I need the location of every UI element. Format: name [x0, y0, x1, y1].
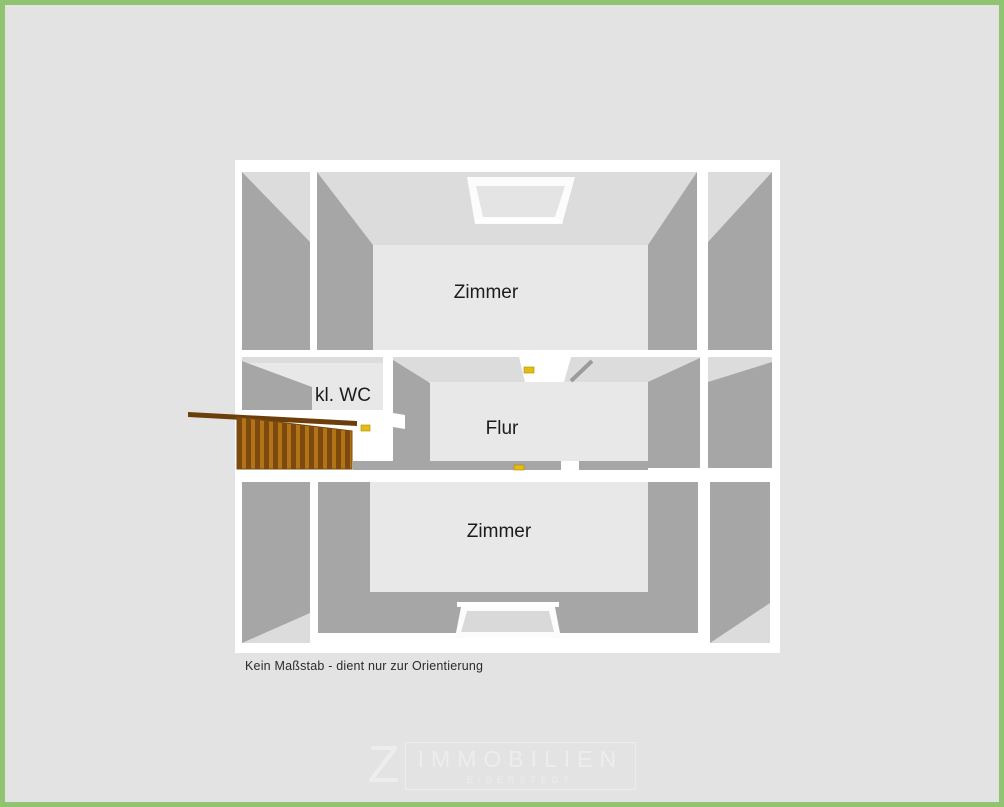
door-opening: [393, 413, 405, 429]
floorplan-canvas: Zimmer kl. WC: [5, 5, 1004, 807]
staircase: [188, 412, 357, 469]
brand-logo: Z IMMOBILIEN EIDERSTEDT: [368, 742, 636, 790]
floor: [430, 382, 648, 462]
room-label-zimmer-top: Zimmer: [454, 282, 519, 303]
wall-face: [648, 482, 698, 633]
room-label-wc: kl. WC: [315, 385, 371, 406]
room-label-zimmer-bottom: Zimmer: [467, 521, 532, 542]
room-label-flur: Flur: [486, 418, 519, 439]
middle-band: kl. WC: [188, 357, 772, 472]
logo-subtitle: EIDERSTEDT: [467, 775, 574, 785]
skylight-top-icon: [467, 177, 575, 224]
logo-letter-z: Z: [368, 742, 400, 790]
door-handle-icon: [361, 425, 370, 431]
room-zimmer-bottom: Zimmer: [242, 482, 770, 643]
door-opening: [561, 461, 579, 470]
disclaimer-text: Kein Maßstab - dient nur zur Orientierun…: [245, 659, 483, 673]
logo-name: IMMOBILIEN: [418, 746, 623, 773]
door-handle-icon: [514, 465, 524, 470]
page-background: Zimmer kl. WC: [0, 0, 1004, 807]
room-zimmer-top: Zimmer: [242, 172, 772, 350]
door-handle-icon: [524, 367, 534, 373]
wall-face: [353, 461, 648, 470]
skylight-bottom-icon: [455, 602, 561, 638]
logo-box: IMMOBILIEN EIDERSTEDT: [405, 742, 636, 790]
